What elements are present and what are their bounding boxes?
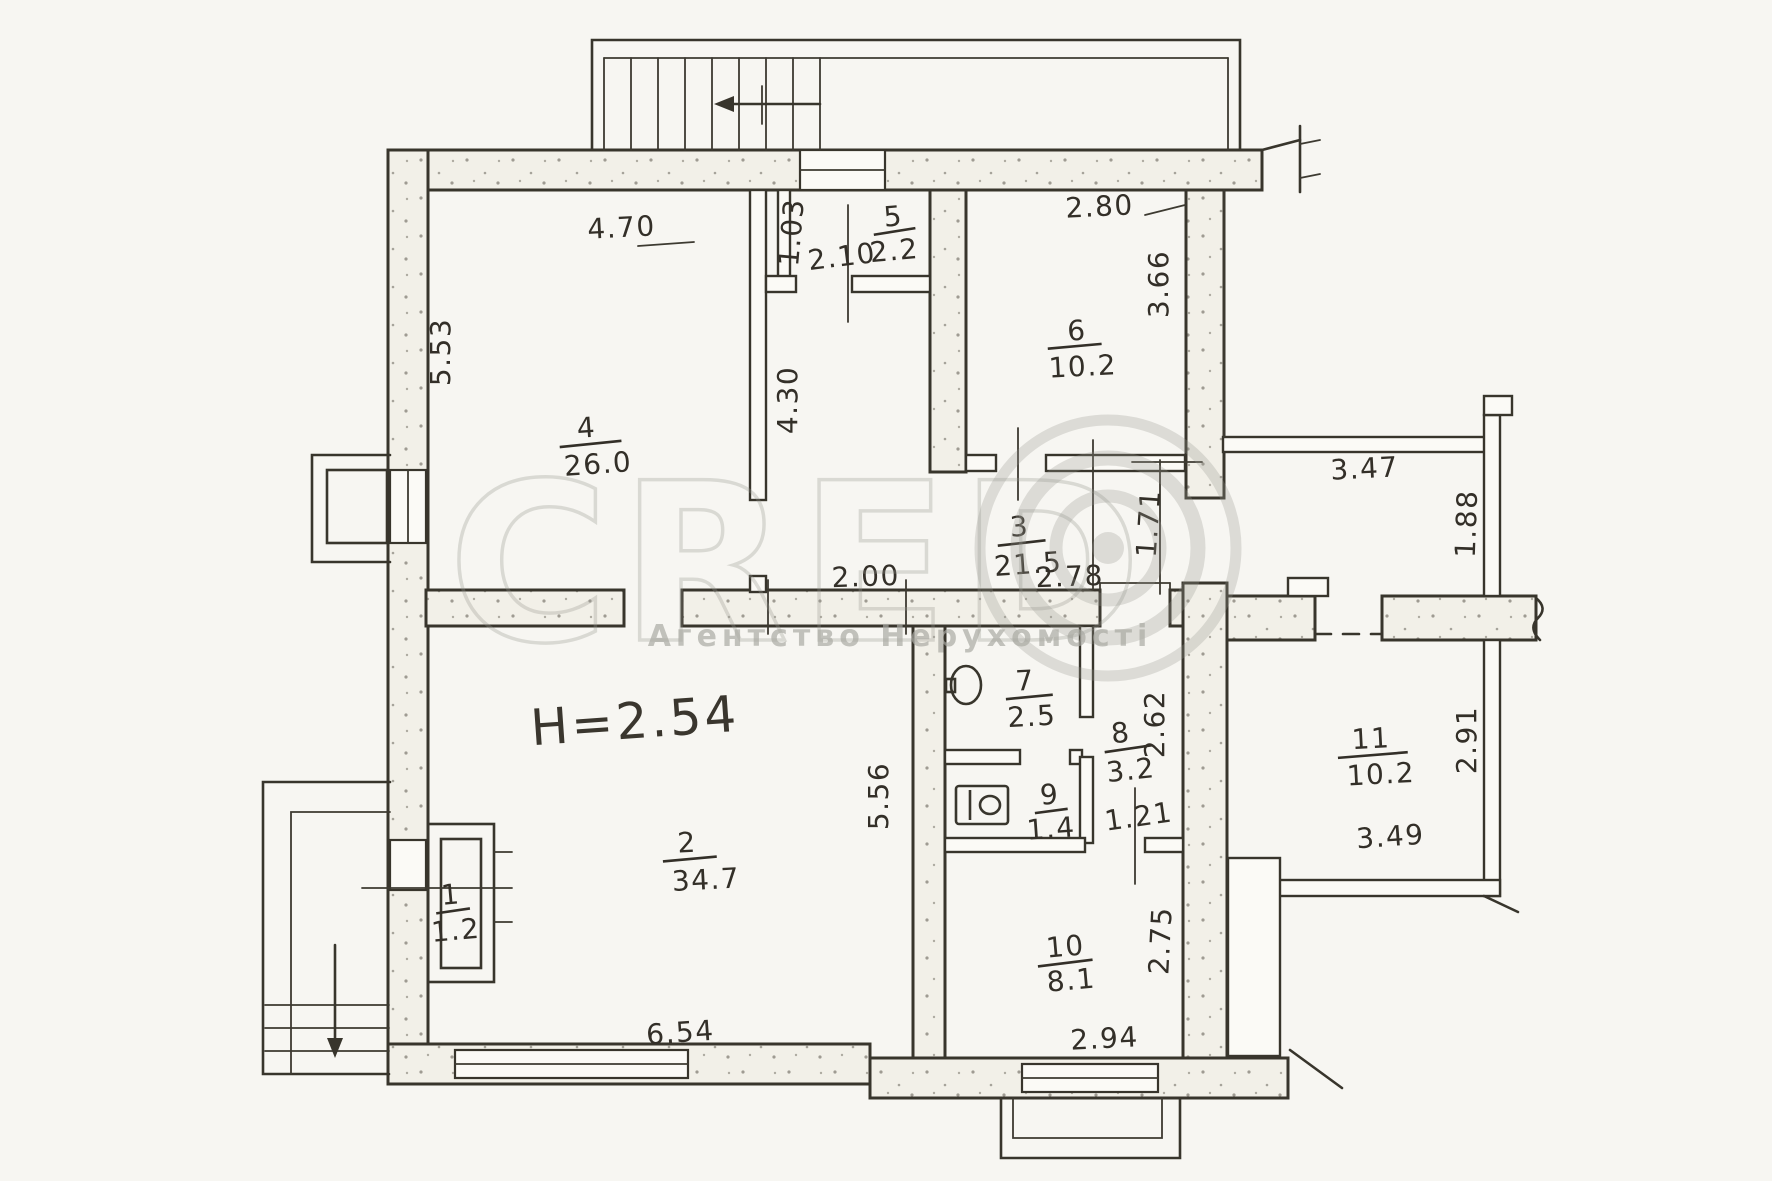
floor-plan-drawing: 4.70 5.53 1.03 2.10 4.30 2.80 3.66 2.00 … [0, 0, 1772, 1181]
dim-room11-depth: 2.91 [1450, 706, 1483, 774]
wall-end-tick-right [1484, 896, 1518, 912]
room-label-6: 6 10.2 [1046, 312, 1118, 384]
floor-plan-scan: 4.70 5.53 1.03 2.10 4.30 2.80 3.66 2.00 … [0, 0, 1772, 1181]
cut-tick-1 [1300, 140, 1320, 144]
wall-cut-bottom-right [1290, 1050, 1342, 1088]
room-6-area: 10.2 [1048, 348, 1118, 385]
wall-room11-right [1484, 640, 1500, 896]
cut-tick-2 [1300, 174, 1320, 178]
room-10-area: 8.1 [1045, 962, 1097, 999]
dim-room6-width: 2.80 [1065, 188, 1135, 225]
dim-room4-depth: 5.53 [424, 318, 457, 386]
arrow-head-down-icon [327, 1038, 343, 1058]
porch-outer [263, 782, 390, 1074]
room-label-9: 9 1.4 [1023, 776, 1077, 846]
wall-room10-top-right [1145, 838, 1183, 852]
room-9-number: 9 [1039, 777, 1061, 811]
stairs-direction-arrow [714, 86, 820, 124]
dim-room4-width: 4.70 [587, 209, 657, 246]
top-right-cut [1262, 126, 1320, 192]
room-8-area: 3.2 [1105, 751, 1157, 789]
room-5-number: 5 [882, 199, 904, 234]
dim-room6-depth: 3.66 [1142, 250, 1175, 318]
wall-room5-bottom-left [766, 276, 796, 292]
room-9-area: 1.4 [1025, 810, 1076, 846]
dim-room2-depth: 5.56 [862, 762, 895, 830]
room-6-number: 6 [1066, 314, 1087, 348]
room-label-5: 5 2.2 [865, 198, 920, 269]
dim-room8-depth: 2.62 [1138, 690, 1171, 758]
dim-room10-depth: 2.75 [1142, 906, 1179, 976]
balcony-outer [1001, 1098, 1180, 1158]
wall-room8-left-lower [1080, 757, 1093, 843]
room-11-number: 11 [1351, 721, 1391, 756]
porch-inner [291, 812, 390, 1074]
wall-wing-corridor-top [1223, 437, 1497, 452]
cut-extension [1262, 140, 1300, 150]
room-2-area: 34.7 [671, 861, 741, 898]
entrance-door-left [390, 840, 426, 890]
wall-room11-top-right [1382, 596, 1536, 640]
room-1-number: 1 [440, 877, 462, 912]
watermark-caption: Агентство Нерухомості [648, 619, 1153, 654]
dim-room11-width: 3.49 [1355, 818, 1425, 856]
room-label-10: 10 8.1 [1035, 928, 1097, 1000]
dim-hall-depth: 4.30 [771, 366, 804, 434]
wall-room6-left [930, 190, 966, 472]
wall-bath-divider-left [945, 750, 1020, 764]
room-label-2: 2 34.7 [661, 823, 741, 898]
wall-wing-right-upper [1484, 415, 1500, 596]
arrow-head-left-icon [714, 96, 734, 112]
ceiling-height-label: H=2.54 [529, 685, 741, 757]
entrance-porch [263, 782, 390, 1074]
duct-strip [1228, 858, 1280, 1056]
room-2-number: 2 [676, 826, 697, 860]
room-11-area: 10.2 [1346, 756, 1416, 793]
balcony-bottom [1001, 1098, 1180, 1158]
room-label-1: 1 1.2 [427, 876, 482, 949]
dim-wing-right: 1.88 [1449, 489, 1484, 558]
dim-wing-corridor: 3.47 [1330, 450, 1400, 487]
balcony-inner [1013, 1098, 1162, 1138]
room-7-area: 2.5 [1007, 699, 1058, 735]
dim-room5-depth: 1.03 [772, 197, 811, 268]
room-10-number: 10 [1045, 928, 1086, 964]
toilet-icon [956, 786, 1008, 824]
wall-wing-right-flag [1484, 396, 1512, 415]
dim-room10-width: 2.94 [1070, 1020, 1140, 1057]
room-1-area: 1.2 [430, 912, 482, 949]
room-label-11: 11 10.2 [1336, 720, 1416, 793]
entrance-arrow-down [327, 945, 343, 1058]
dim-room8-width: 1.21 [1103, 795, 1175, 837]
wall-rooms-block-right [1183, 583, 1227, 1058]
room-8-number: 8 [1109, 716, 1132, 751]
room-5-area: 2.2 [868, 232, 920, 269]
dim-hall-width: 2.10 [806, 236, 878, 277]
room1-vestibule [362, 824, 512, 982]
bay-inner [327, 470, 387, 543]
dim-room2-width: 6.54 [645, 1014, 715, 1052]
wall-room5-bottom-right [852, 276, 930, 292]
wall-room11-top-left [1227, 596, 1315, 640]
staircase-outline [592, 40, 1240, 150]
wall-notch [1288, 578, 1328, 596]
watermark: CRED Агентство Нерухомості [448, 420, 1236, 692]
staircase [592, 40, 1240, 150]
wall-left [388, 150, 428, 1082]
bay-window-left [312, 455, 390, 562]
